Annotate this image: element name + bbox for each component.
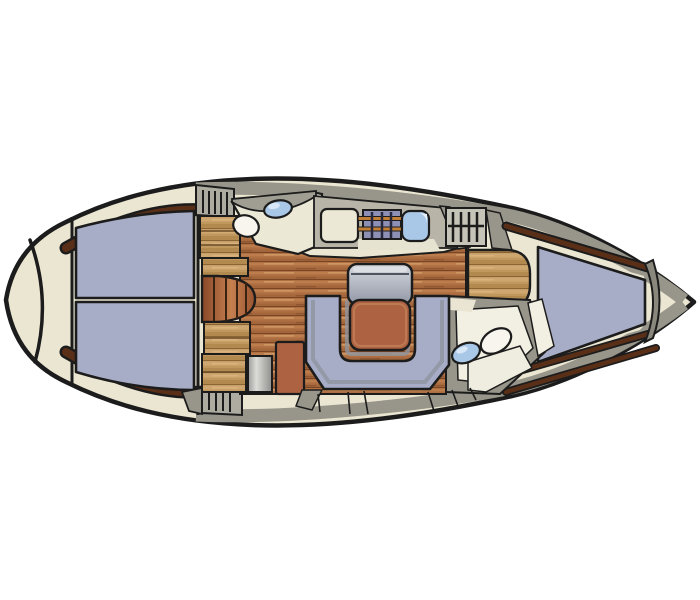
- galley-icebox: [321, 209, 358, 242]
- curved-steps: [202, 276, 255, 322]
- forward-cabin-berth-top: [76, 211, 194, 298]
- aft-head-door-gap: [450, 298, 476, 312]
- storage-box: [276, 342, 304, 394]
- saloon-bench: [348, 264, 412, 304]
- companionway-steps: [446, 208, 486, 246]
- fridge-box: [248, 356, 272, 392]
- saloon-table: [350, 300, 410, 350]
- boat-floor-plan: [0, 0, 700, 600]
- louvered-locker-forward-top: [196, 185, 234, 217]
- galley-stove: [358, 210, 404, 239]
- galley-counter-front: [358, 239, 440, 250]
- forward-cabin-berth-bottom: [76, 302, 194, 390]
- cabinet-shelf-upper: [202, 258, 248, 276]
- floor-plan-canvas: [0, 0, 700, 600]
- cabinet-shelf-lower: [202, 354, 246, 392]
